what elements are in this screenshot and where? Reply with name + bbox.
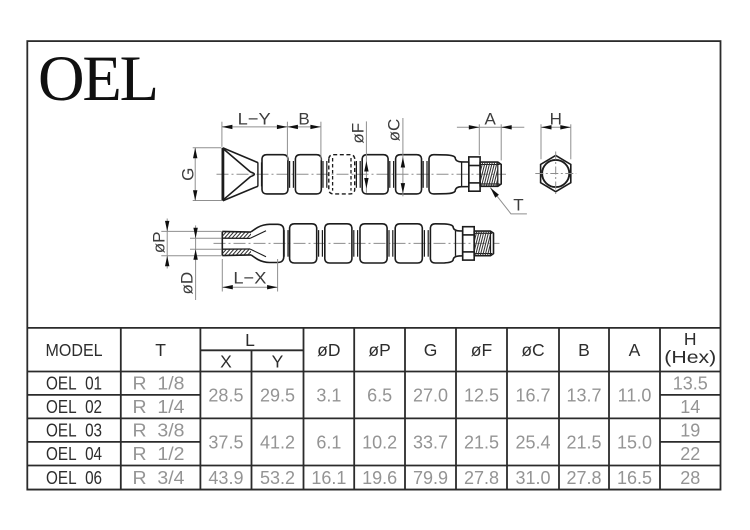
svg-text:28.5: 28.5: [208, 385, 243, 405]
svg-text:19.6: 19.6: [362, 468, 397, 488]
svg-text:OEL: OEL: [38, 43, 157, 114]
svg-text:33.7: 33.7: [413, 432, 448, 452]
svg-text:6.5: 6.5: [367, 385, 392, 405]
svg-text:11.0: 11.0: [618, 385, 652, 405]
svg-text:R 1/8: R 1/8: [133, 374, 185, 394]
svg-text:OEL 04: OEL 04: [46, 444, 102, 464]
svg-text:B: B: [578, 340, 590, 360]
svg-text:37.5: 37.5: [208, 432, 243, 452]
svg-text:6.1: 6.1: [316, 432, 341, 452]
svg-text:OEL 01: OEL 01: [46, 374, 102, 394]
svg-text:25.4: 25.4: [515, 432, 550, 452]
svg-text:øP: øP: [150, 232, 169, 254]
svg-text:79.9: 79.9: [413, 468, 448, 488]
svg-text:43.9: 43.9: [208, 468, 243, 488]
svg-text:21.5: 21.5: [566, 432, 601, 452]
svg-text:31.0: 31.0: [515, 468, 550, 488]
svg-text:G: G: [424, 340, 438, 360]
svg-text:19: 19: [680, 421, 700, 441]
svg-text:16.7: 16.7: [515, 385, 550, 405]
svg-text:MODEL: MODEL: [46, 340, 103, 360]
svg-text:H: H: [550, 110, 562, 129]
svg-text:H: H: [684, 329, 697, 349]
svg-text:A: A: [485, 109, 497, 128]
svg-text:27.0: 27.0: [413, 385, 448, 405]
svg-text:B: B: [298, 109, 309, 128]
svg-text:16.5: 16.5: [617, 468, 652, 488]
svg-text:22: 22: [680, 444, 700, 464]
svg-text:øP: øP: [368, 340, 390, 360]
svg-text:28: 28: [680, 468, 700, 488]
svg-text:27.8: 27.8: [464, 468, 499, 488]
svg-text:X: X: [220, 351, 232, 371]
svg-text:41.2: 41.2: [260, 432, 295, 452]
svg-text:OEL 02: OEL 02: [46, 397, 102, 417]
svg-text:øC: øC: [521, 340, 544, 360]
svg-text:A: A: [629, 340, 641, 360]
svg-text:R 1/2: R 1/2: [133, 444, 185, 464]
svg-text:L: L: [245, 330, 255, 350]
svg-text:L−X: L−X: [233, 269, 266, 288]
svg-text:G: G: [178, 168, 197, 181]
svg-text:R 1/4: R 1/4: [133, 397, 185, 417]
svg-text:øD: øD: [178, 272, 197, 295]
svg-text:Y: Y: [272, 351, 284, 371]
svg-text:øF: øF: [348, 123, 367, 144]
svg-text:21.5: 21.5: [464, 432, 499, 452]
svg-text:øD: øD: [317, 340, 340, 360]
svg-text:12.5: 12.5: [464, 385, 499, 405]
svg-text:10.2: 10.2: [362, 432, 397, 452]
svg-text:3.1: 3.1: [316, 385, 341, 405]
svg-text:øC: øC: [385, 119, 404, 142]
svg-text:OEL 06: OEL 06: [46, 468, 102, 488]
svg-text:T: T: [155, 340, 166, 360]
svg-text:53.2: 53.2: [260, 468, 295, 488]
svg-text:15.0: 15.0: [617, 432, 652, 452]
svg-text:R 3/8: R 3/8: [133, 421, 185, 441]
svg-text:27.8: 27.8: [566, 468, 601, 488]
svg-text:(Hex): (Hex): [664, 347, 716, 367]
svg-text:T: T: [513, 195, 523, 214]
svg-text:L−Y: L−Y: [238, 109, 271, 128]
svg-text:13.5: 13.5: [673, 374, 708, 394]
svg-text:16.1: 16.1: [311, 468, 346, 488]
svg-text:14: 14: [680, 397, 700, 417]
svg-text:øF: øF: [471, 340, 492, 360]
svg-text:OEL 03: OEL 03: [46, 421, 102, 441]
svg-text:29.5: 29.5: [260, 385, 295, 405]
svg-text:R 3/4: R 3/4: [133, 468, 185, 488]
svg-text:13.7: 13.7: [566, 385, 601, 405]
